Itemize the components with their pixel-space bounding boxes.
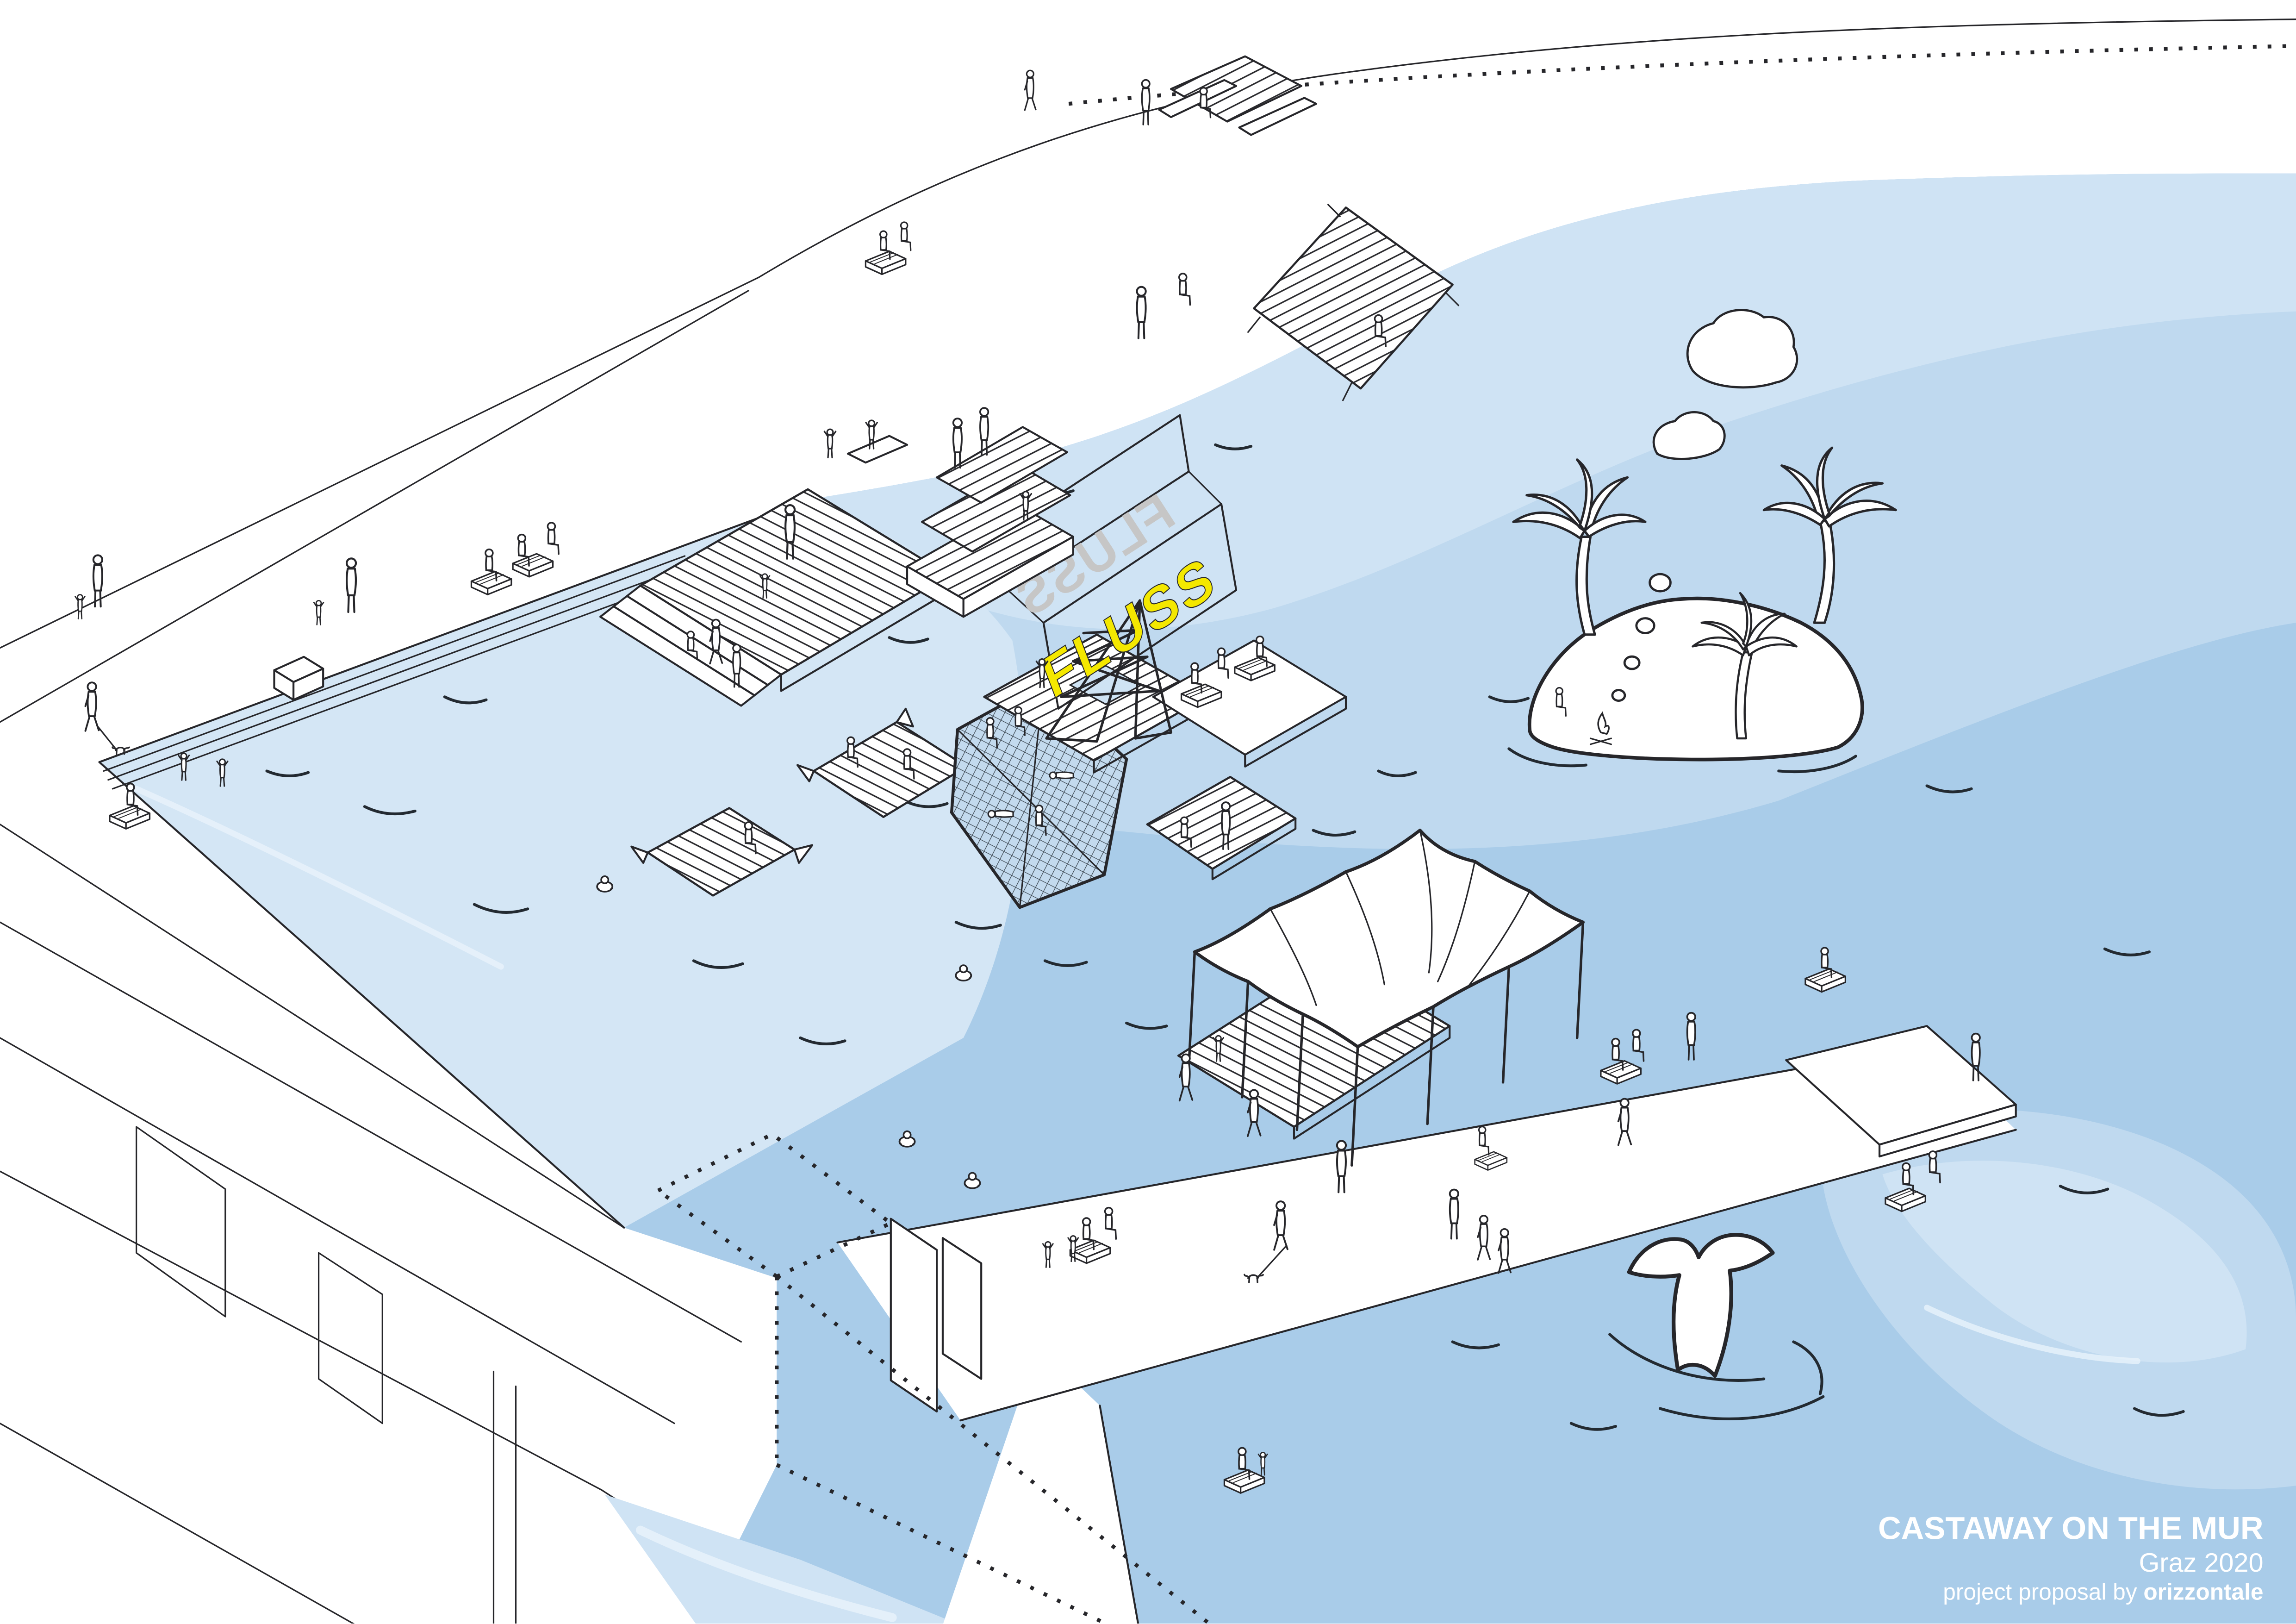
person-figure — [1050, 772, 1073, 779]
project-title: CASTAWAY ON THE MUR — [1878, 1510, 2264, 1546]
credit-prefix: project proposal by — [1943, 1579, 2143, 1605]
project-credit: project proposal by orizzontale — [1943, 1579, 2263, 1605]
poster: FLUSS FLUSS — [0, 0, 2296, 1624]
person-figure — [988, 811, 1013, 818]
credit-brand: orizzontale — [2143, 1579, 2263, 1605]
illustration-canvas: FLUSS FLUSS — [0, 0, 2296, 1624]
project-subtitle: Graz 2020 — [2139, 1548, 2263, 1578]
